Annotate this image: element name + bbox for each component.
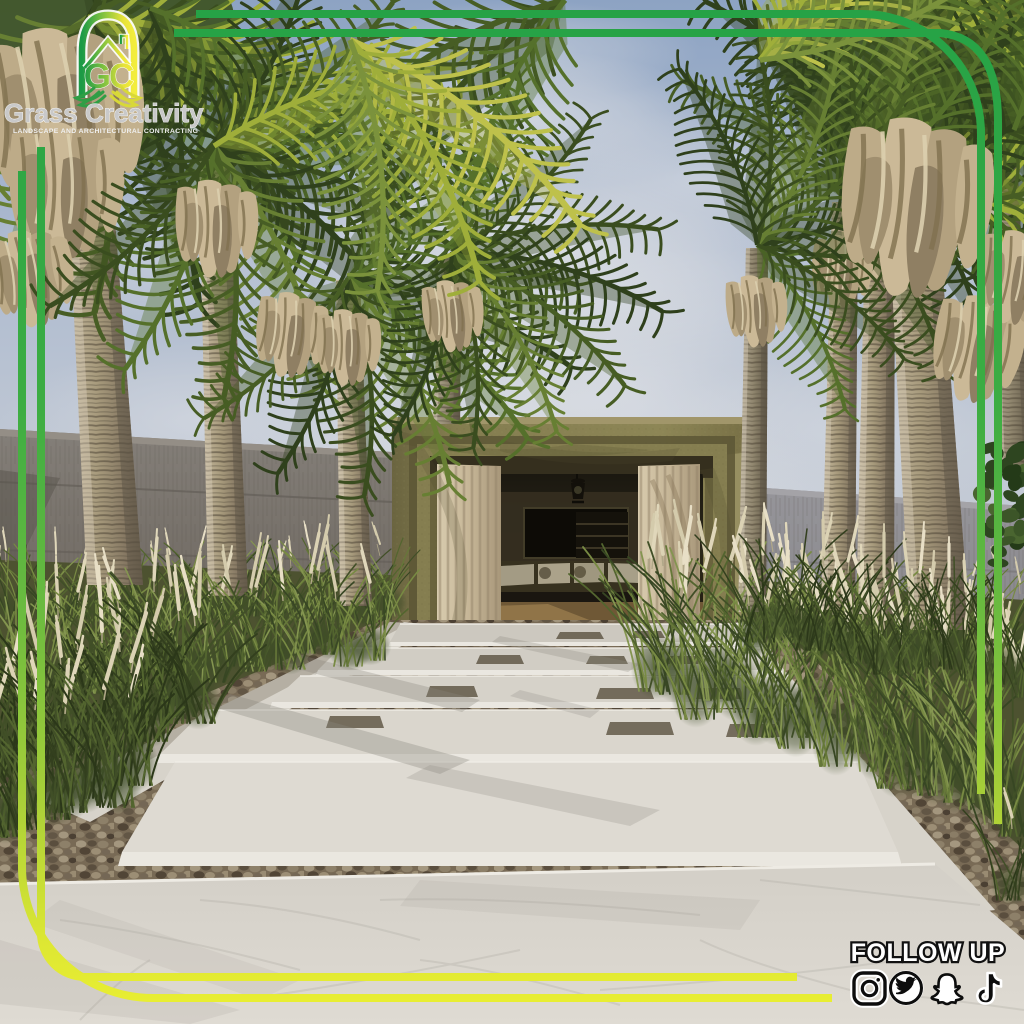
svg-text:Grass Creativity: Grass Creativity: [4, 98, 204, 128]
svg-text:LANDSCAPE AND ARCHITECTURAL CO: LANDSCAPE AND ARCHITECTURAL CONTRACTING: [13, 128, 198, 135]
svg-text:FOLLOW UP: FOLLOW UP: [851, 939, 1005, 967]
